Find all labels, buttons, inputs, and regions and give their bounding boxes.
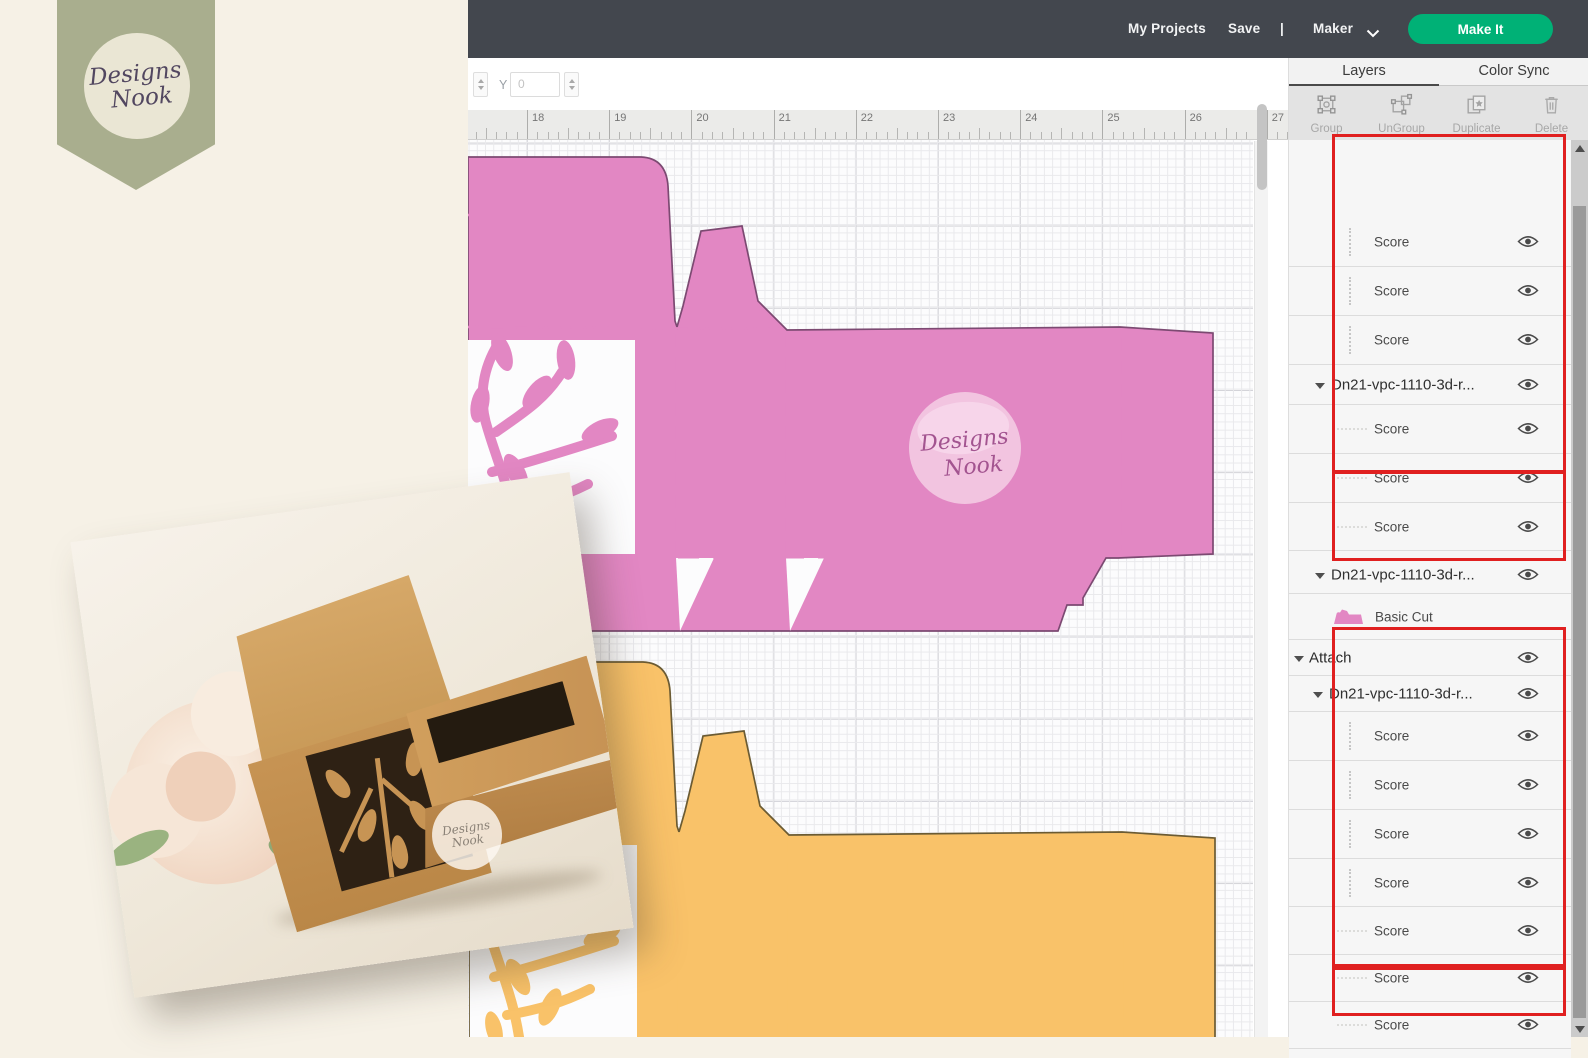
layer-label: Score [1374, 284, 1409, 299]
ruler-number: 27 [1272, 112, 1284, 124]
visibility-eye-icon[interactable] [1517, 729, 1541, 743]
ruler-minor-tick [1144, 128, 1145, 139]
layer-row-score[interactable]: Score [1289, 405, 1571, 454]
ruler-minor-tick [671, 132, 672, 139]
ruler-minor-tick [1113, 132, 1114, 139]
layer-label: Score [1374, 235, 1409, 250]
score-line-thumbnail [1349, 277, 1351, 305]
ruler-number: 21 [779, 112, 791, 124]
ruler-major-tick [1185, 110, 1186, 140]
save-link[interactable]: Save [1228, 0, 1260, 58]
visibility-eye-icon[interactable] [1517, 235, 1541, 249]
ruler-minor-tick [743, 132, 744, 139]
y-label: Y [499, 78, 507, 92]
layer-row-score[interactable]: Score [1289, 1002, 1571, 1049]
horizontal-ruler: 18192021222324252627 [468, 110, 1288, 140]
duplicate-label: Duplicate [1453, 123, 1501, 135]
make-it-button[interactable]: Make It [1408, 14, 1553, 44]
layer-row-score[interactable]: Score [1289, 316, 1571, 365]
ruler-minor-tick [1236, 132, 1237, 139]
layer-row-score[interactable]: Score [1289, 454, 1571, 503]
visibility-eye-icon[interactable] [1517, 520, 1541, 534]
ruler-minor-tick [1061, 128, 1062, 139]
visibility-eye-icon[interactable] [1517, 1018, 1541, 1032]
layer-row-score[interactable]: Score [1289, 761, 1571, 810]
visibility-eye-icon[interactable] [1517, 651, 1541, 665]
ruler-number: 26 [1190, 112, 1202, 124]
position-toolbar: Y 0 [468, 58, 1288, 110]
ruler-minor-tick [1041, 132, 1042, 139]
scroll-up-arrow-icon[interactable] [1571, 140, 1588, 156]
ruler-major-tick [691, 110, 692, 140]
visibility-eye-icon[interactable] [1517, 876, 1541, 890]
ruler-number: 18 [532, 112, 544, 124]
ruler-minor-tick [887, 132, 888, 139]
ruler-number: 24 [1025, 112, 1037, 124]
ruler-major-tick [527, 110, 528, 140]
ruler-minor-tick [897, 128, 898, 139]
score-line-thumbnail [1337, 977, 1367, 979]
ruler-minor-tick [712, 132, 713, 139]
score-line-thumbnail [1337, 1024, 1367, 1026]
layer-row-score[interactable]: Score [1289, 859, 1571, 907]
score-line-thumbnail [1349, 326, 1351, 354]
layer-row-score[interactable]: Score [1289, 907, 1571, 955]
layer-row-dn21-vpc-1110-3d-r[interactable]: Dn21-vpc-1110-3d-r... [1289, 365, 1571, 405]
ruler-minor-tick [835, 132, 836, 139]
ruler-minor-tick [568, 128, 569, 139]
ruler-minor-tick [815, 128, 816, 139]
canvas-scrollbar-thumb[interactable] [1257, 104, 1267, 190]
visibility-eye-icon[interactable] [1517, 971, 1541, 985]
score-line-thumbnail [1349, 771, 1351, 799]
score-line-thumbnail [1337, 930, 1367, 932]
pink-shape-thumbnail [1333, 607, 1365, 627]
ruler-minor-tick [784, 132, 785, 139]
ruler-minor-tick [804, 132, 805, 139]
ruler-minor-tick [917, 132, 918, 139]
visibility-eye-icon[interactable] [1517, 471, 1541, 485]
y-stepper[interactable] [564, 72, 579, 97]
visibility-eye-icon[interactable] [1517, 924, 1541, 938]
visibility-eye-icon[interactable] [1517, 284, 1541, 298]
duplicate-button[interactable]: Duplicate [1439, 86, 1514, 140]
ruler-major-tick [938, 110, 939, 140]
layer-label: Dn21-vpc-1110-3d-r... [1331, 376, 1475, 393]
tab-color-sync[interactable]: Color Sync [1439, 58, 1588, 86]
ruler-minor-tick [1154, 132, 1155, 139]
ruler-minor-tick [548, 132, 549, 139]
ruler-minor-tick [1215, 132, 1216, 139]
ruler-minor-tick [1010, 132, 1011, 139]
visibility-eye-icon[interactable] [1517, 378, 1541, 392]
cricut-design-space-window: My Projects Save | Maker Make It Y 0 181… [468, 0, 1588, 1037]
top-bar-divider: | [1280, 0, 1284, 58]
ruler-major-tick [1020, 110, 1021, 140]
visibility-eye-icon[interactable] [1517, 778, 1541, 792]
ruler-minor-tick [1133, 132, 1134, 139]
ruler-minor-tick [496, 132, 497, 139]
layer-actions: Group UnGroup [1289, 86, 1588, 140]
layers-panel: Layers Color Sync Group [1288, 58, 1588, 1037]
x-stepper[interactable] [473, 72, 488, 97]
visibility-eye-icon[interactable] [1517, 827, 1541, 841]
layer-row-score[interactable]: Score [1289, 503, 1571, 551]
layer-row-dn21-vpc-1110-3d-r[interactable]: Dn21-vpc-1110-3d-r... [1289, 556, 1571, 594]
ungroup-icon [1389, 92, 1414, 122]
score-line-thumbnail [1349, 722, 1351, 750]
layer-row-dn21-vpc-1110-3d-r[interactable]: Dn21-vpc-1110-3d-r... [1289, 676, 1571, 712]
ruler-minor-tick [681, 132, 682, 139]
duplicate-icon [1464, 92, 1489, 122]
ungroup-button[interactable]: UnGroup [1364, 86, 1439, 140]
ruler-minor-tick [866, 132, 867, 139]
ruler-minor-tick [876, 132, 877, 139]
ruler-minor-tick [1051, 132, 1052, 139]
screenshot-root: My Projects Save | Maker Make It Y 0 181… [0, 0, 1588, 1058]
layer-label: Score [1374, 519, 1409, 534]
group-label: Group [1311, 123, 1343, 135]
layer-label: Score [1374, 923, 1409, 938]
score-line-thumbnail [1337, 526, 1367, 528]
collapse-triangle-icon[interactable] [1294, 656, 1304, 662]
layer-label: Score [1374, 729, 1409, 744]
ruler-minor-tick [846, 132, 847, 139]
ruler-minor-tick [1174, 132, 1175, 139]
ruler-minor-tick [619, 132, 620, 139]
ruler-minor-tick [948, 132, 949, 139]
ruler-major-tick [609, 110, 610, 140]
ruler-major-tick [774, 110, 775, 140]
ruler-number: 22 [861, 112, 873, 124]
tab-layers[interactable]: Layers [1289, 58, 1439, 86]
ruler-minor-tick [753, 132, 754, 139]
layer-row-basic-cut[interactable]: Basic Cut [1289, 594, 1571, 640]
ruler-minor-tick [1164, 132, 1165, 139]
ruler-minor-tick [733, 128, 734, 139]
ruler-number: 25 [1107, 112, 1119, 124]
chevron-down-icon[interactable] [1366, 25, 1380, 43]
panel-tabs: Layers Color Sync [1289, 58, 1588, 86]
ruler-minor-tick [486, 128, 487, 139]
layer-label: Score [1374, 1018, 1409, 1033]
score-line-thumbnail [1349, 820, 1351, 848]
group-icon [1314, 92, 1339, 122]
ruler-minor-tick [506, 132, 507, 139]
ruler-minor-tick [640, 132, 641, 139]
ruler-minor-tick [989, 132, 990, 139]
layer-row-score[interactable]: Score [1289, 955, 1571, 1002]
layer-row-score[interactable]: Score [1289, 810, 1571, 859]
ruler-minor-tick [578, 132, 579, 139]
layer-row-score[interactable]: Score [1289, 218, 1571, 267]
layer-label: Score [1374, 875, 1409, 890]
visibility-eye-icon[interactable] [1517, 687, 1541, 701]
ruler-minor-tick [1195, 132, 1196, 139]
scroll-down-arrow-icon[interactable] [1571, 1021, 1588, 1037]
ruler-minor-tick [959, 132, 960, 139]
ruler-minor-tick [928, 132, 929, 139]
ruler-major-tick [1102, 110, 1103, 140]
layer-label: Score [1374, 333, 1409, 348]
visibility-eye-icon[interactable] [1517, 422, 1541, 436]
layer-label: Score [1374, 471, 1409, 486]
panel-scrollbar-thumb[interactable] [1573, 206, 1586, 1018]
collapse-triangle-icon[interactable] [1315, 573, 1325, 579]
collapse-triangle-icon[interactable] [1313, 692, 1323, 698]
photo-watermark-line-2: Nook [451, 833, 485, 850]
ruler-minor-tick [722, 132, 723, 139]
layer-row-score[interactable]: Score [1289, 712, 1571, 761]
layer-row-attach[interactable]: Attach [1289, 640, 1571, 676]
ruler-minor-tick [825, 132, 826, 139]
ruler-minor-tick [1082, 132, 1083, 139]
ruler-number: 19 [614, 112, 626, 124]
ruler-minor-tick [1000, 132, 1001, 139]
ruler-minor-tick [661, 132, 662, 139]
machine-selector[interactable]: Maker [1313, 0, 1353, 58]
ruler-minor-tick [1226, 128, 1227, 139]
ruler-minor-tick [1092, 132, 1093, 139]
score-line-thumbnail [1349, 869, 1351, 897]
ruler-minor-tick [1277, 132, 1278, 139]
ruler-minor-tick [1030, 132, 1031, 139]
ruler-minor-tick [517, 132, 518, 139]
ruler-minor-tick [702, 132, 703, 139]
ruler-minor-tick [1072, 132, 1073, 139]
layer-label: Score [1374, 827, 1409, 842]
ruler-minor-tick [1205, 132, 1206, 139]
group-button[interactable]: Group [1289, 86, 1364, 140]
layer-label: Attach [1309, 649, 1352, 666]
canvas-scrollbar[interactable] [1254, 141, 1268, 1037]
layer-label: Basic Cut [1375, 609, 1433, 624]
delete-label: Delete [1535, 123, 1568, 135]
brand-badge-circle: Designs Nook [84, 33, 190, 139]
ruler-minor-tick [650, 128, 651, 139]
layer-list: ScoreScoreScoreDn21-vpc-1110-3d-r...Scor… [1289, 140, 1571, 1037]
layer-label: Dn21-vpc-1110-3d-r... [1329, 685, 1473, 702]
brand-line-2: Nook [110, 82, 174, 113]
ruler-number: 23 [943, 112, 955, 124]
ruler-minor-tick [630, 132, 631, 139]
delete-icon [1539, 92, 1564, 122]
my-projects-link[interactable]: My Projects [1128, 0, 1206, 58]
top-bar: My Projects Save | Maker Make It [468, 0, 1588, 58]
score-line-thumbnail [1349, 228, 1351, 256]
ungroup-label: UnGroup [1378, 123, 1425, 135]
ruler-major-tick [856, 110, 857, 140]
ruler-minor-tick [599, 132, 600, 139]
score-line-thumbnail [1337, 477, 1367, 479]
layer-label: Score [1374, 971, 1409, 986]
layer-label: Score [1374, 422, 1409, 437]
panel-scrollbar[interactable] [1571, 140, 1588, 1037]
y-position-input[interactable]: 0 [510, 72, 560, 97]
layer-row-score[interactable]: Score [1289, 267, 1571, 316]
delete-button[interactable]: Delete [1514, 86, 1588, 140]
ruler-minor-tick [589, 132, 590, 139]
visibility-eye-icon[interactable] [1517, 333, 1541, 347]
visibility-eye-icon[interactable] [1517, 568, 1541, 582]
brand-badge: Designs Nook [57, 0, 215, 190]
ruler-minor-tick [537, 132, 538, 139]
layer-row-basic-cut[interactable]: Basic Cut [1289, 1049, 1571, 1058]
ruler-minor-tick [558, 132, 559, 139]
ruler-minor-tick [979, 128, 980, 139]
ruler-minor-tick [794, 132, 795, 139]
layer-label: Dn21-vpc-1110-3d-r... [1331, 566, 1475, 583]
ruler-minor-tick [969, 132, 970, 139]
product-photo: Designs Nook [70, 472, 633, 998]
score-line-thumbnail [1337, 428, 1367, 430]
ruler-minor-tick [1246, 132, 1247, 139]
ruler-number: 20 [696, 112, 708, 124]
ruler-minor-tick [907, 132, 908, 139]
ruler-minor-tick [763, 132, 764, 139]
collapse-triangle-icon[interactable] [1315, 383, 1325, 389]
layer-label: Score [1374, 778, 1409, 793]
svg-text:Nook: Nook [942, 452, 1004, 482]
ruler-minor-tick [1123, 132, 1124, 139]
ruler-minor-tick [476, 132, 477, 139]
